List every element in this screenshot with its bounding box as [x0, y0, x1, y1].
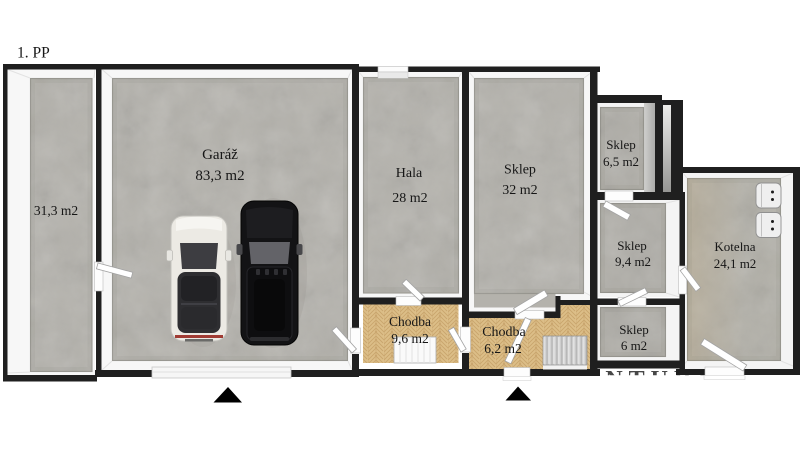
svg-text:Sklep: Sklep: [619, 322, 649, 337]
svg-text:Garáž: Garáž: [202, 147, 238, 163]
svg-text:Hala: Hala: [396, 166, 423, 181]
svg-text:31,3 m2: 31,3 m2: [34, 203, 78, 218]
svg-text:Chodba: Chodba: [482, 325, 526, 340]
svg-text:28 m2: 28 m2: [392, 191, 427, 206]
svg-text:9,4 m2: 9,4 m2: [615, 254, 651, 269]
svg-text:6,2 m2: 6,2 m2: [484, 341, 522, 356]
svg-text:9,6 m2: 9,6 m2: [391, 331, 429, 346]
svg-text:Kotelna: Kotelna: [714, 239, 755, 254]
svg-text:32 m2: 32 m2: [502, 183, 537, 198]
svg-text:Sklep: Sklep: [504, 163, 536, 178]
svg-text:83,3 m2: 83,3 m2: [195, 168, 244, 184]
svg-text:24,1 m2: 24,1 m2: [714, 256, 757, 271]
svg-text:Sklep: Sklep: [617, 238, 647, 253]
svg-text:1. PP: 1. PP: [17, 45, 50, 62]
svg-text:6 m2: 6 m2: [621, 338, 647, 353]
svg-text:Sklep: Sklep: [606, 137, 636, 152]
svg-text:Chodba: Chodba: [389, 314, 431, 329]
svg-text:6,5 m2: 6,5 m2: [603, 154, 639, 169]
